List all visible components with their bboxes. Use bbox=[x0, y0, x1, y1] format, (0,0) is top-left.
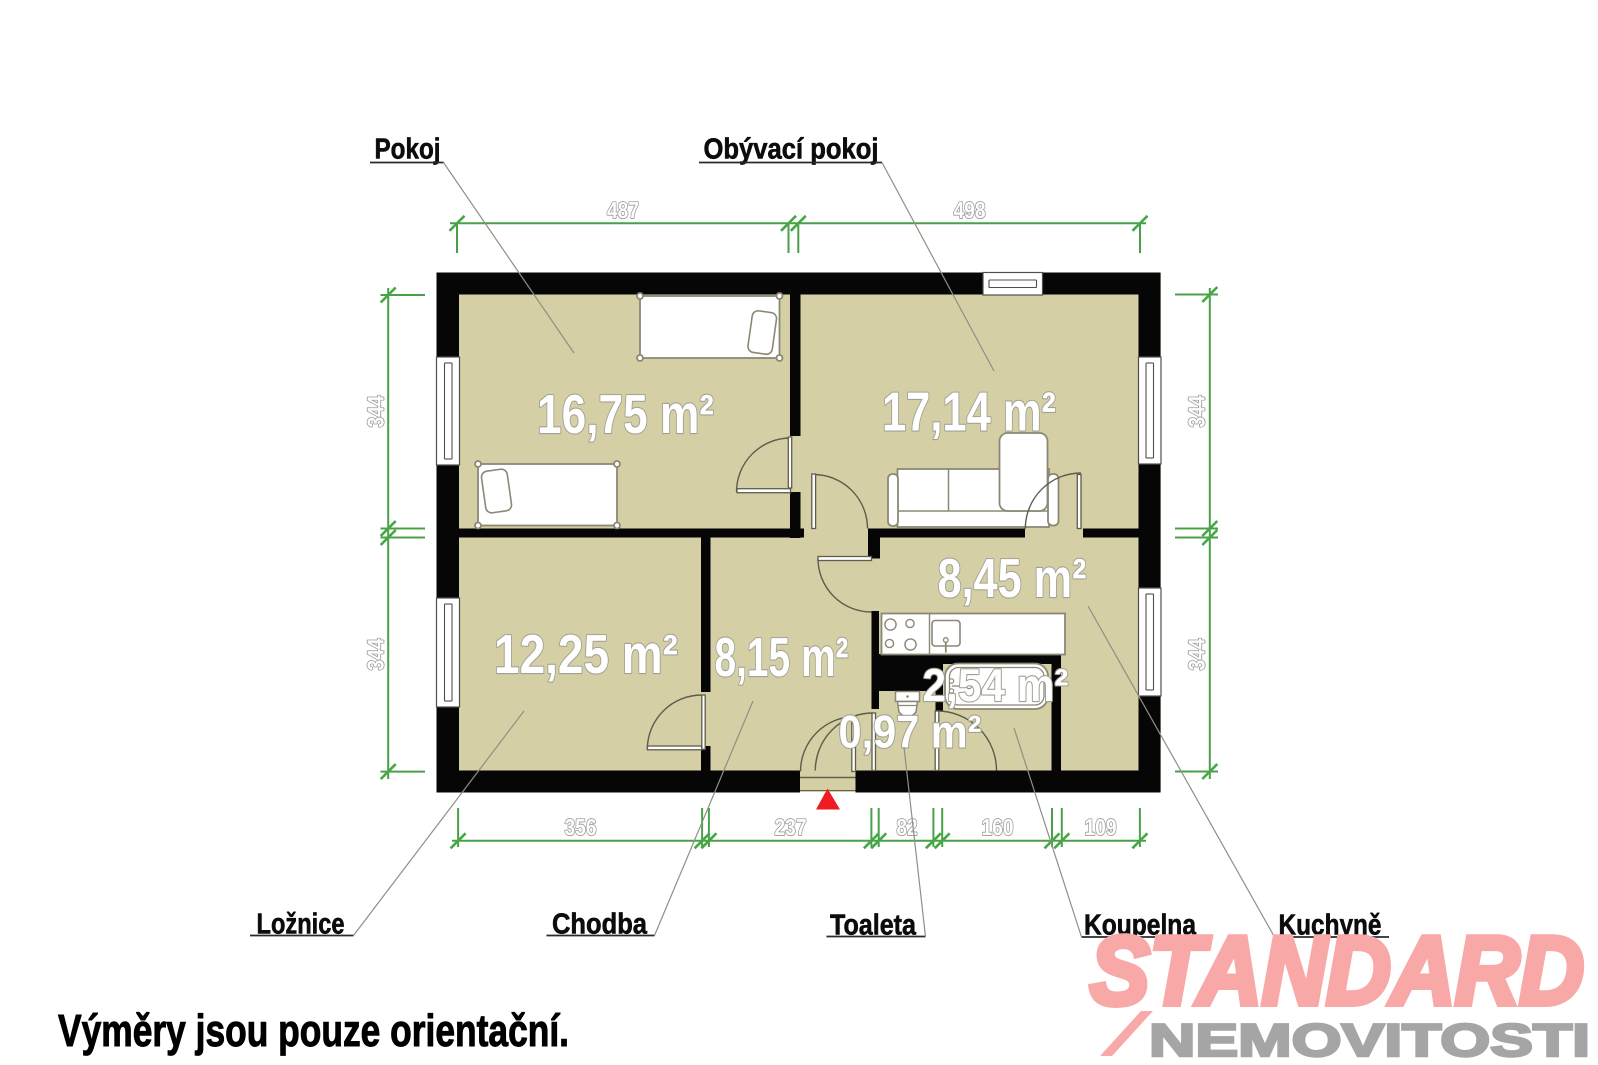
svg-text:109: 109 bbox=[1085, 814, 1117, 840]
svg-text:344: 344 bbox=[363, 395, 389, 427]
svg-text:498: 498 bbox=[954, 197, 986, 223]
svg-text:Pokoj: Pokoj bbox=[375, 134, 441, 166]
svg-text:356: 356 bbox=[565, 814, 597, 840]
svg-text:487: 487 bbox=[607, 197, 639, 223]
svg-text:0,97 m²: 0,97 m² bbox=[839, 706, 982, 758]
svg-text:12,25 m²: 12,25 m² bbox=[494, 623, 678, 685]
svg-text:2,54 m²: 2,54 m² bbox=[923, 659, 1069, 711]
svg-text:8,45 m²: 8,45 m² bbox=[938, 547, 1087, 609]
svg-text:160: 160 bbox=[982, 814, 1014, 840]
svg-text:STANDARD: STANDARD bbox=[1090, 916, 1584, 1025]
svg-text:8,15 m²: 8,15 m² bbox=[715, 626, 849, 688]
svg-text:17,14 m²: 17,14 m² bbox=[882, 381, 1056, 443]
svg-text:344: 344 bbox=[1184, 638, 1210, 670]
svg-text:237: 237 bbox=[775, 814, 807, 840]
svg-text:Obývací pokoj: Obývací pokoj bbox=[704, 134, 879, 166]
svg-text:NEMOVITOSTI: NEMOVITOSTI bbox=[1149, 1014, 1590, 1065]
svg-text:Výměry jsou pouze orientační.: Výměry jsou pouze orientační. bbox=[58, 1005, 569, 1056]
svg-text:344: 344 bbox=[1184, 395, 1210, 427]
svg-text:344: 344 bbox=[363, 638, 389, 670]
svg-text:16,75 m²: 16,75 m² bbox=[537, 383, 714, 445]
